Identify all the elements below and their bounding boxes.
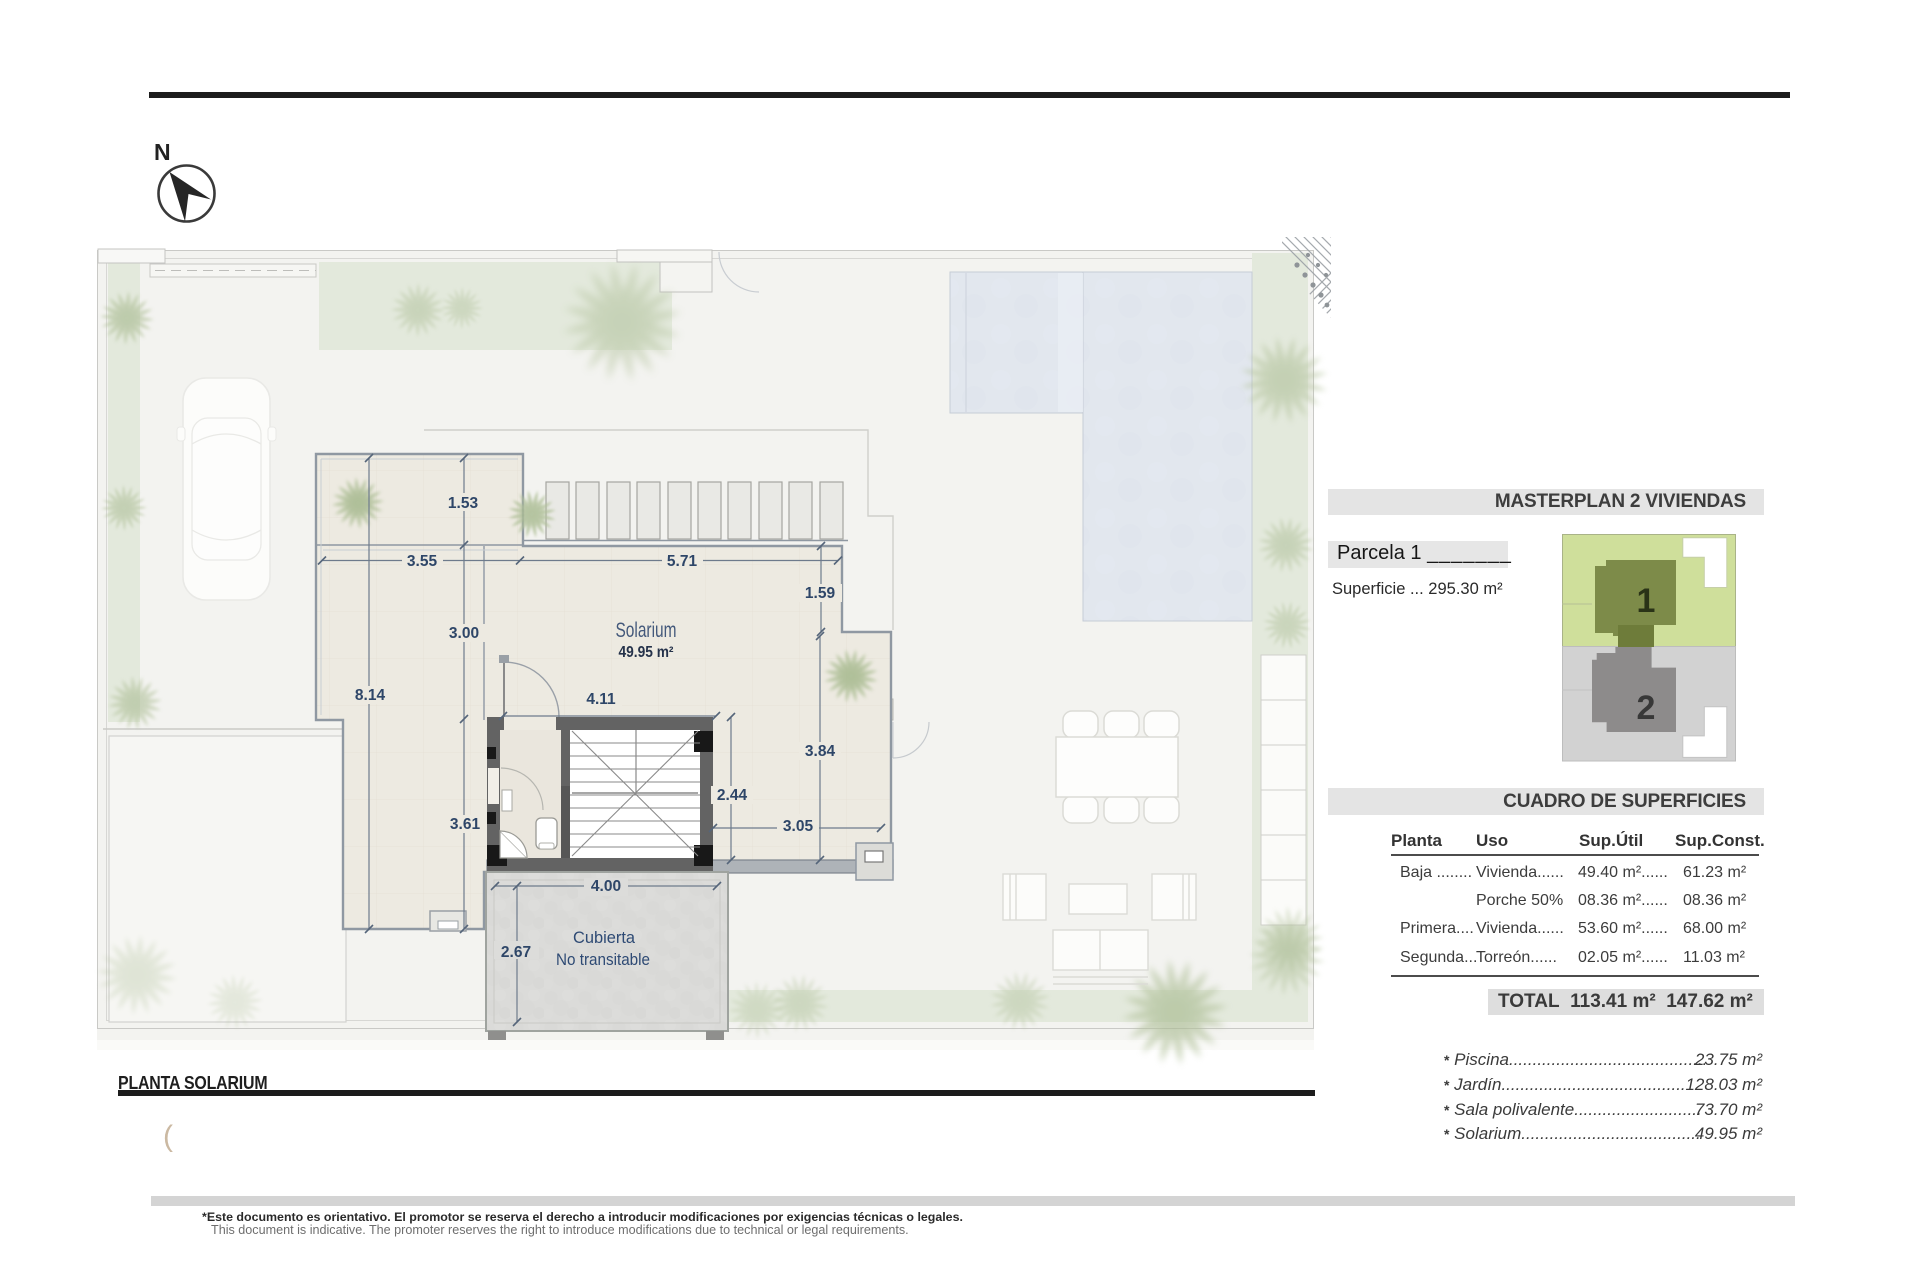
svg-text:3.00: 3.00 (449, 625, 479, 642)
svg-text:8.14: 8.14 (355, 687, 386, 704)
svg-text:3.61: 3.61 (450, 816, 481, 833)
svg-text:5.71: 5.71 (667, 553, 698, 570)
svg-text:Solarium: Solarium (616, 619, 677, 642)
svg-text:4.11: 4.11 (586, 691, 616, 708)
svg-text:1.53: 1.53 (448, 495, 479, 512)
svg-text:49.95 m²: 49.95 m² (619, 644, 674, 661)
svg-text:1: 1 (1637, 582, 1656, 620)
svg-text:2: 2 (1637, 689, 1656, 727)
svg-text:3.55: 3.55 (407, 553, 438, 570)
svg-text:2.44: 2.44 (717, 787, 748, 804)
svg-text:3.84: 3.84 (805, 743, 836, 760)
svg-text:4.00: 4.00 (591, 878, 621, 895)
svg-text:2.67: 2.67 (501, 944, 531, 961)
svg-text:Cubierta: Cubierta (573, 928, 636, 947)
svg-text:3.05: 3.05 (783, 818, 814, 835)
svg-text:1.59: 1.59 (805, 585, 836, 602)
svg-text:No transitable: No transitable (556, 950, 650, 969)
